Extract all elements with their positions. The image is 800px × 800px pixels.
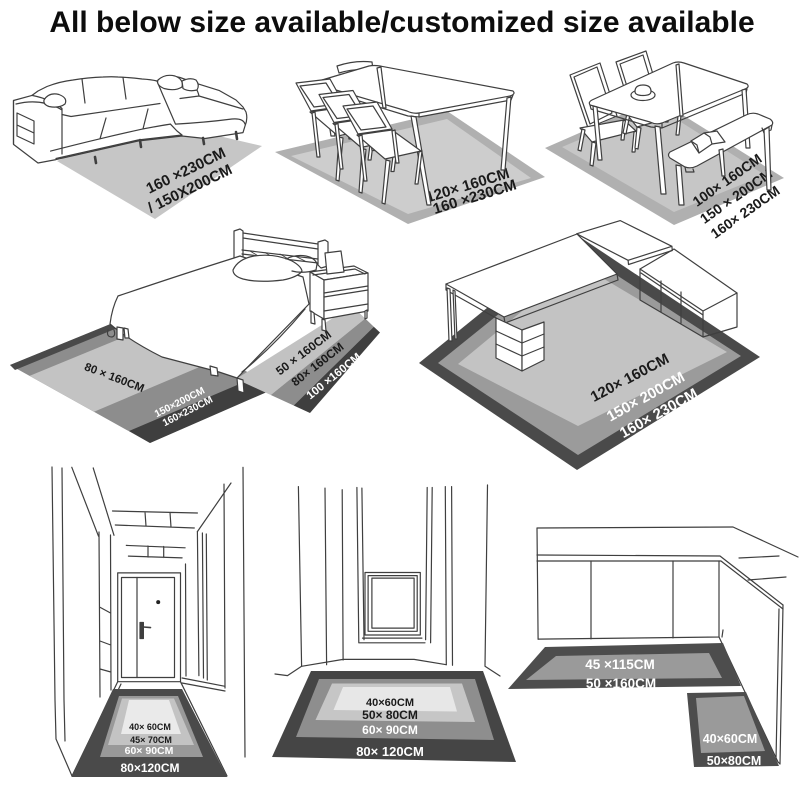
svg-text:All below size available/custo: All below size available/customized size… [49,6,754,39]
svg-text:40×60CM: 40×60CM [703,732,758,746]
svg-text:50× 80CM: 50× 80CM [362,708,418,722]
svg-text:45 ×115CM: 45 ×115CM [585,657,654,672]
svg-text:50×80CM: 50×80CM [707,754,762,768]
svg-text:80×120CM: 80×120CM [120,761,179,775]
svg-text:50 ×160CM: 50 ×160CM [586,676,656,691]
svg-text:45× 70CM: 45× 70CM [130,735,172,745]
svg-text:60× 90CM: 60× 90CM [362,723,418,737]
svg-text:40× 60CM: 40× 60CM [129,722,171,732]
svg-text:60× 90CM: 60× 90CM [125,745,174,757]
svg-text:80× 120CM: 80× 120CM [356,744,424,759]
